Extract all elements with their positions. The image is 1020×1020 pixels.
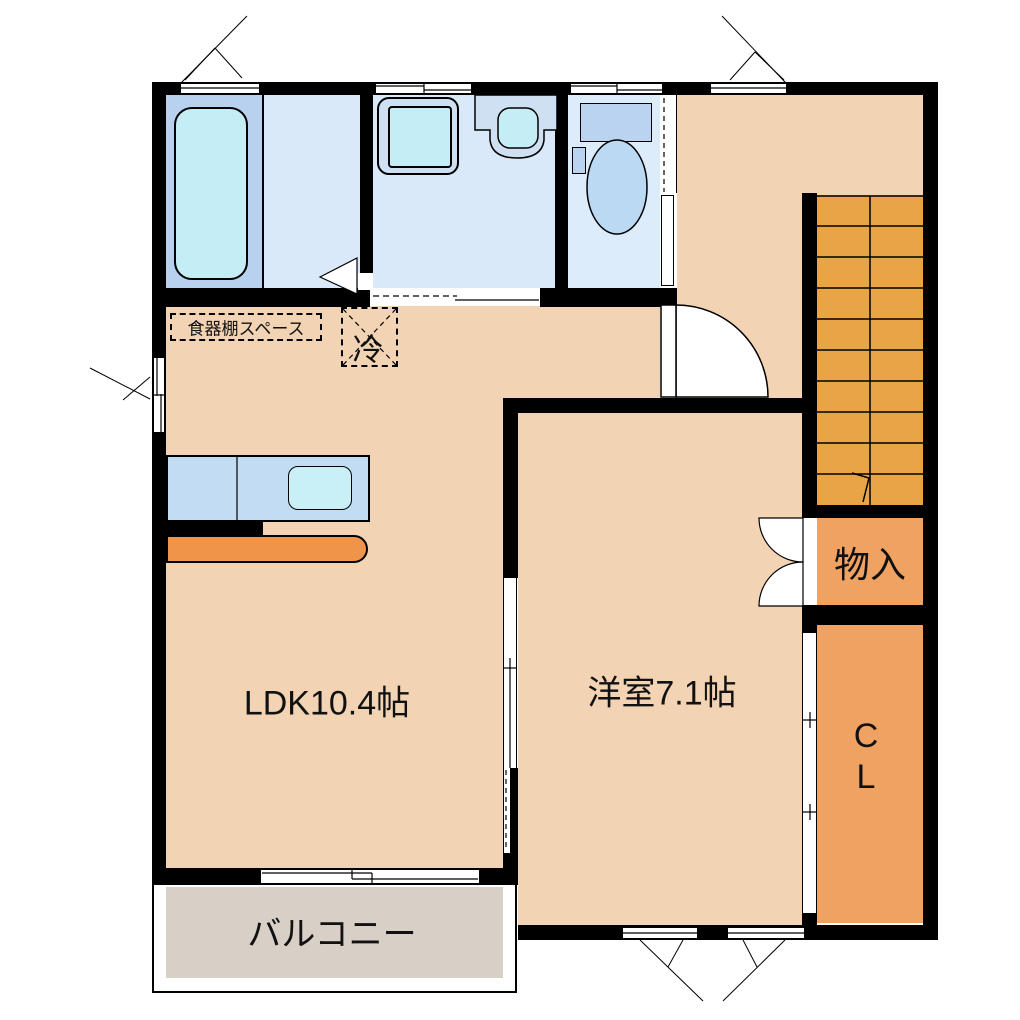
bathroom-dressing-floor	[264, 95, 360, 288]
storage-door-jamb	[802, 518, 817, 605]
hallway-floor	[677, 197, 802, 398]
wall-storage-top	[802, 505, 923, 518]
wall-kitchen-stub	[152, 520, 263, 535]
window-western-right	[727, 927, 805, 939]
kitchen-counter-lower	[166, 535, 368, 563]
cupboard-space-label: 食器棚スペース	[188, 315, 305, 340]
door-leaf-ldk-hall	[661, 305, 676, 397]
closet-label: C L	[854, 716, 879, 798]
wall-partition-upper	[503, 398, 518, 578]
window-ldk-left	[153, 357, 165, 433]
wall-top	[152, 82, 938, 95]
toilet-tank	[580, 103, 652, 142]
washing-machine	[388, 106, 452, 168]
window-western-left	[622, 927, 698, 939]
washroom-sliding-door	[370, 291, 540, 306]
window-washroom	[375, 83, 472, 94]
closet-sliding-door	[802, 633, 817, 913]
wall-bath-bottom-right	[540, 288, 677, 307]
kitchen-sink	[288, 466, 352, 510]
fridge-label: 冷	[353, 325, 384, 370]
wall-bath-divider	[262, 95, 264, 288]
bathtub	[174, 107, 248, 280]
bathroom-doorway	[358, 273, 373, 290]
floor-plan: LDK10.4帖 洋室7.1帖 バルコニー 物入 C L 食器棚スペース 冷	[0, 0, 1020, 1020]
wall-storage-bottom	[802, 605, 923, 625]
window-hallway	[710, 83, 787, 94]
wall-washroom-left	[360, 95, 373, 273]
hallway-floor-top	[677, 95, 923, 197]
ldk-label: LDK10.4帖	[244, 676, 410, 725]
closet-label-line1: C	[854, 717, 879, 755]
storage-label: 物入	[834, 536, 906, 588]
toilet-flush-handle	[572, 147, 586, 174]
wall-stairs-left	[802, 193, 817, 510]
western-room-label: 洋室7.1帖	[587, 666, 736, 715]
toilet-door-leaf	[661, 195, 674, 286]
wall-closet-stub-top	[802, 625, 817, 633]
window-bathroom	[180, 83, 260, 94]
wall-partition-lower	[503, 853, 518, 885]
partition-sliding-door	[503, 578, 517, 853]
staircase	[817, 195, 923, 505]
wall-toilet-left	[555, 95, 568, 288]
balcony-sliding-door	[260, 869, 480, 884]
closet-label-line2: L	[857, 758, 876, 796]
wall-left	[152, 82, 166, 885]
balcony-label: バルコニー	[247, 907, 416, 956]
wall-bath-bottom-left	[152, 288, 370, 307]
wall-right	[923, 82, 938, 940]
window-toilet	[570, 83, 663, 94]
wall-western-top	[503, 398, 810, 413]
